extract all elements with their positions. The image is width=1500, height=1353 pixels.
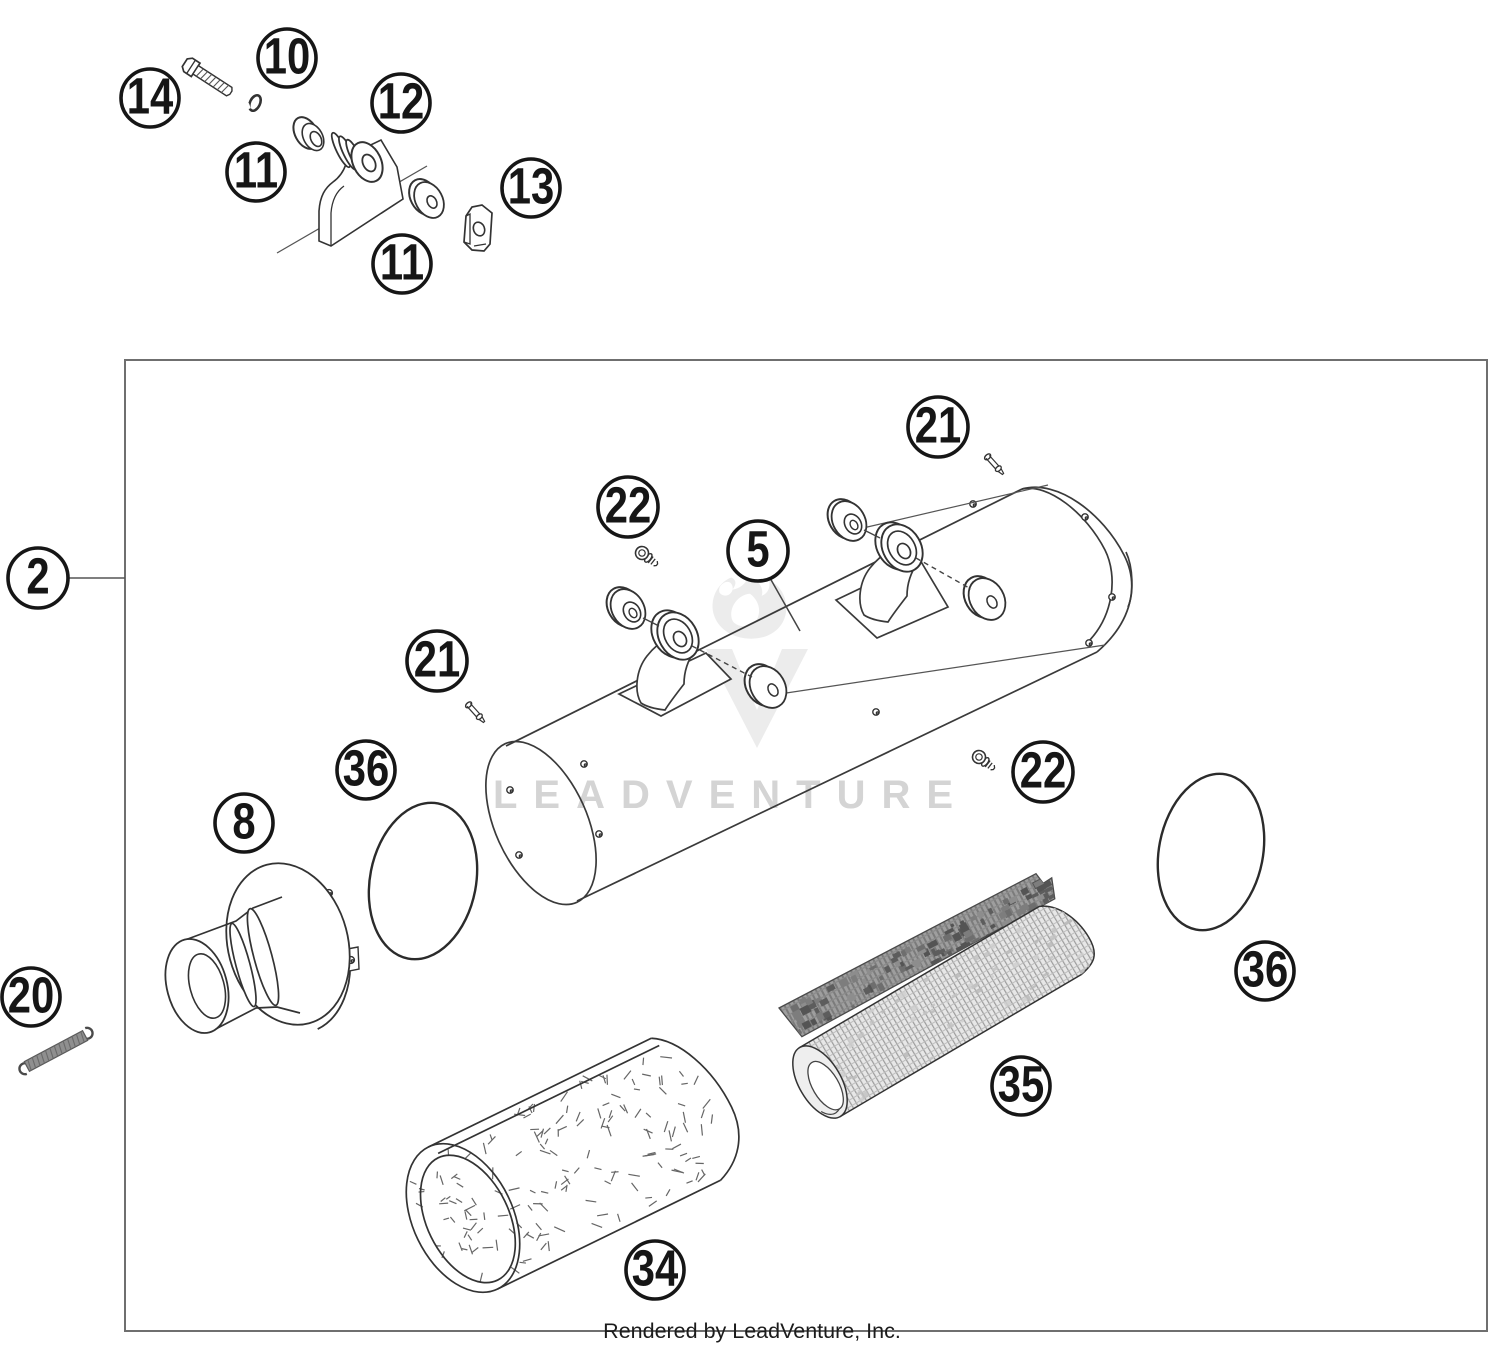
svg-text:LEADVENTURE: LEADVENTURE	[493, 773, 969, 817]
svg-text:22: 22	[605, 477, 651, 534]
svg-text:12: 12	[378, 73, 424, 130]
svg-text:11: 11	[380, 234, 424, 291]
svg-text:22: 22	[1020, 742, 1066, 799]
svg-text:10: 10	[264, 28, 310, 85]
svg-text:34: 34	[632, 1240, 679, 1297]
svg-text:21: 21	[915, 397, 961, 454]
svg-text:21: 21	[414, 631, 460, 688]
svg-text:Rendered by LeadVenture, Inc.: Rendered by LeadVenture, Inc.	[603, 1319, 901, 1343]
svg-text:2: 2	[26, 548, 49, 605]
svg-text:35: 35	[998, 1056, 1044, 1113]
svg-text:36: 36	[343, 740, 389, 797]
svg-text:13: 13	[508, 158, 554, 215]
svg-text:20: 20	[8, 967, 54, 1024]
svg-text:36: 36	[1242, 941, 1288, 998]
svg-text:8: 8	[232, 793, 255, 850]
svg-text:5: 5	[746, 521, 769, 578]
svg-text:11: 11	[234, 142, 278, 199]
svg-text:14: 14	[127, 68, 174, 125]
